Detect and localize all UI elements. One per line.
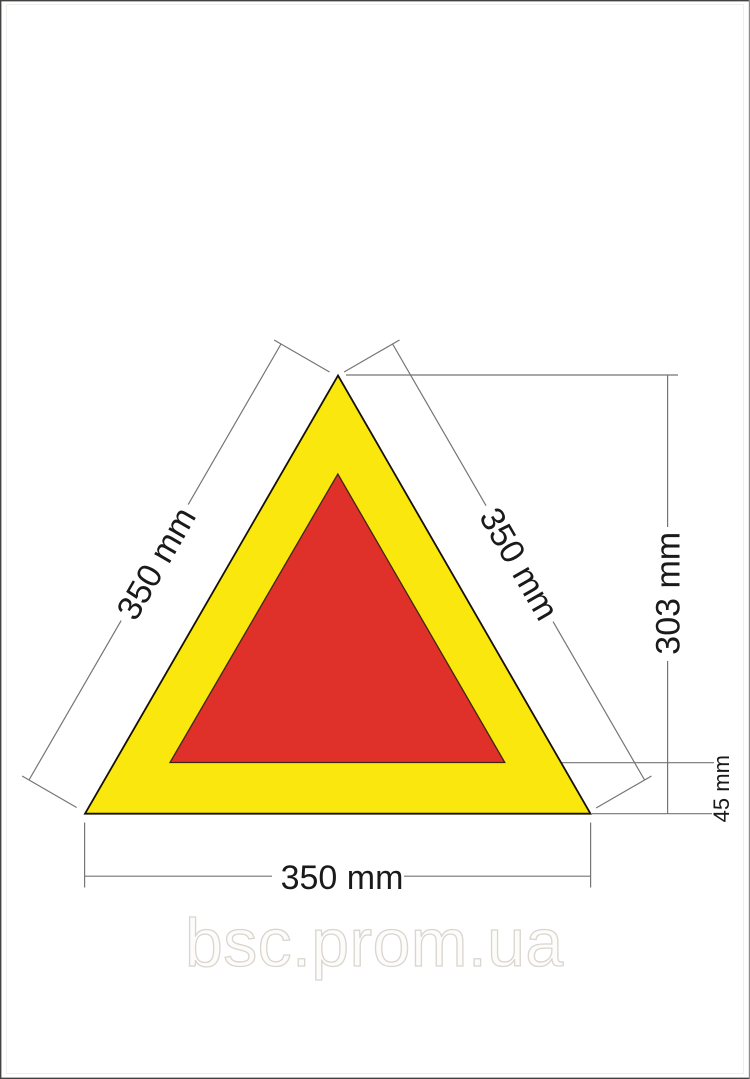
svg-text:350 mm: 350 mm xyxy=(281,859,404,897)
svg-text:bsc.prom.ua: bsc.prom.ua xyxy=(185,905,564,981)
svg-text:303 mm: 303 mm xyxy=(650,532,688,655)
svg-text:45 mm: 45 mm xyxy=(709,755,734,822)
